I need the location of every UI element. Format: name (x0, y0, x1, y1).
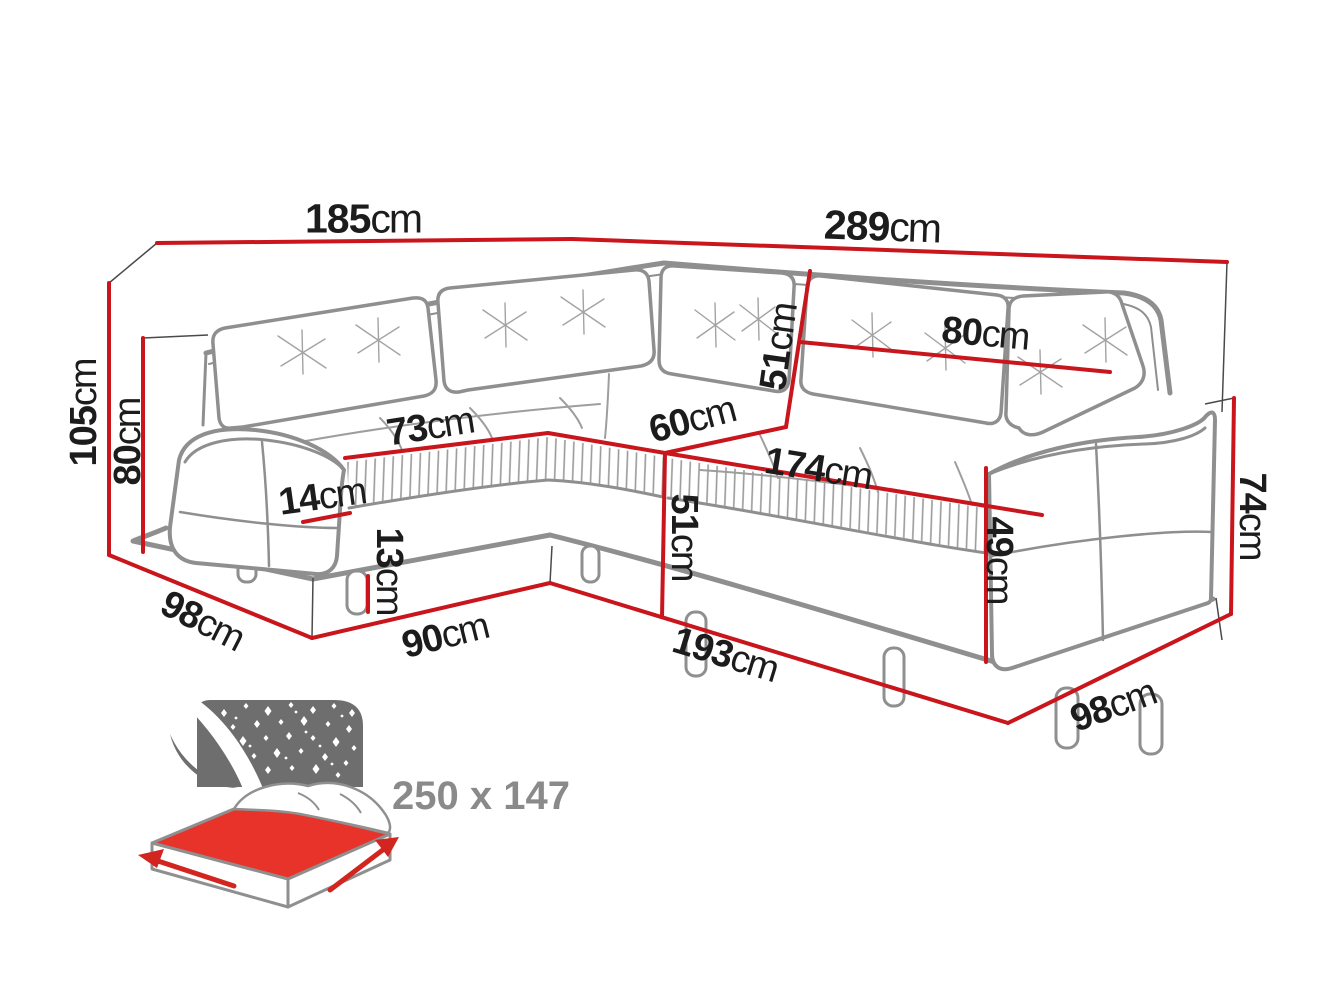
dim-unit: cm (370, 196, 421, 242)
dim-unit: cm (107, 399, 149, 446)
dim-unit: cm (1231, 513, 1273, 560)
dim-label-51-seat: 51cm (665, 494, 703, 581)
dim-unit: cm (663, 534, 705, 581)
right-armrest (989, 413, 1215, 670)
dim-label-80-left: 80cm (109, 399, 147, 486)
cushion-left-2 (438, 270, 654, 392)
extension-arm-top (1205, 398, 1234, 404)
bed-size-label: 250 x 147 (392, 776, 570, 816)
extension-bottom-left (312, 578, 313, 638)
dim-value: 289 (823, 201, 890, 249)
dim-unit: cm (822, 449, 875, 498)
dim-value: 51 (752, 347, 799, 393)
sofa-dimensions-diagram: 185cm 289cm 105cm 80cm 98cm 73cm 14cm 13… (0, 0, 1341, 1005)
dim-value: 80 (107, 445, 149, 485)
dim-unit: cm (316, 470, 368, 518)
dim-unit: cm (980, 313, 1030, 359)
dim-value: 13 (368, 528, 410, 568)
dim-label-49: 49cm (980, 517, 1018, 604)
dim-value: 51 (663, 494, 705, 534)
extension-inner-corner (550, 546, 552, 583)
cushion-left-1 (213, 298, 436, 428)
dim-value: 49 (978, 517, 1020, 557)
dim-unit: cm (758, 301, 806, 353)
dim-label-185: 185cm (305, 199, 421, 240)
extension-back-height (143, 335, 208, 338)
dim-value: 73 (384, 407, 430, 455)
extension-top-left (109, 243, 157, 283)
dim-unit: cm (63, 359, 105, 406)
dim-unit: cm (368, 568, 410, 615)
dim-value: 80 (940, 309, 984, 354)
dim-value: 185 (305, 196, 370, 242)
dim-unit: cm (978, 557, 1020, 604)
dim-label-74: 74cm (1233, 473, 1271, 560)
dim-label-105: 105cm (65, 359, 103, 466)
dim-value: 105 (63, 406, 105, 466)
dim-value: 74 (1231, 473, 1273, 513)
dim-unit: cm (424, 399, 477, 448)
dim-value: 14 (276, 477, 322, 524)
dim-unit: cm (889, 204, 941, 252)
dim-label-80-right: 80cm (940, 311, 1030, 356)
extension-top-right (1222, 262, 1227, 412)
dim-label-13: 13cm (370, 528, 408, 615)
sleep-function-icon (138, 700, 399, 907)
dim-label-289: 289cm (823, 204, 940, 249)
